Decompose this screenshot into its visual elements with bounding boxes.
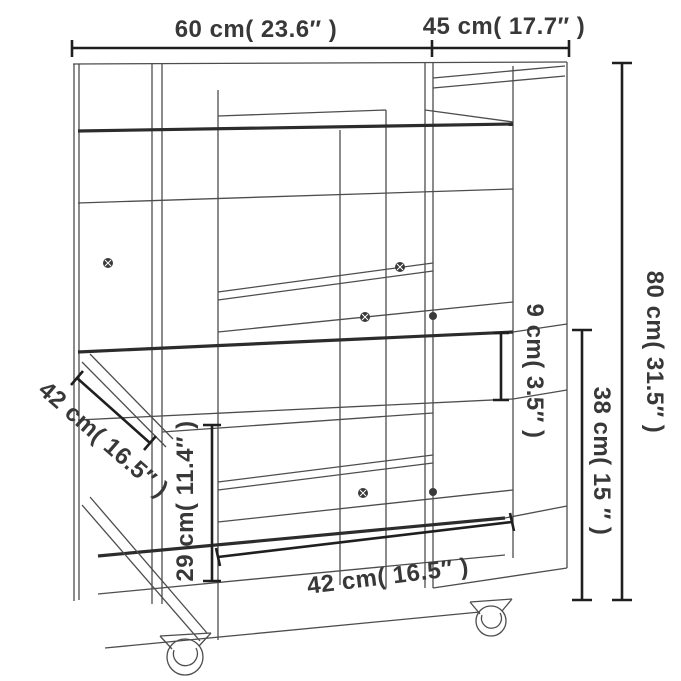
screw-icon bbox=[395, 262, 405, 272]
dim-label-shelf-clearance: 29 cm( 11.4″ ) bbox=[172, 420, 200, 581]
dim-label-top-depth: 45 cm( 17.7″ ) bbox=[423, 13, 586, 41]
dim-label-top-width: 60 cm( 23.6″ ) bbox=[175, 16, 338, 44]
top-shelf bbox=[78, 66, 565, 203]
caster-wheel-front-right bbox=[470, 599, 512, 636]
screw-icon bbox=[360, 312, 370, 322]
dim-label-lower-clearance: 38 cm( 15 ″ ) bbox=[587, 387, 615, 536]
dim-label-rim-height: 9 cm( 3.5″ ) bbox=[520, 304, 548, 439]
dim-label-height: 80 cm( 31.5″ ) bbox=[640, 271, 668, 434]
caster-wheel-front-left bbox=[160, 633, 211, 675]
screw-icons bbox=[103, 258, 437, 498]
dimension-rim-height-line bbox=[493, 333, 509, 400]
diagram-canvas: 60 cm( 23.6″ ) 45 cm( 17.7″ ) 80 cm( 31.… bbox=[0, 0, 681, 681]
screw-icon bbox=[429, 488, 437, 496]
screw-icon bbox=[103, 258, 113, 268]
screw-icon bbox=[358, 488, 368, 498]
screw-icon bbox=[429, 312, 437, 320]
dimension-height-line bbox=[612, 63, 632, 600]
